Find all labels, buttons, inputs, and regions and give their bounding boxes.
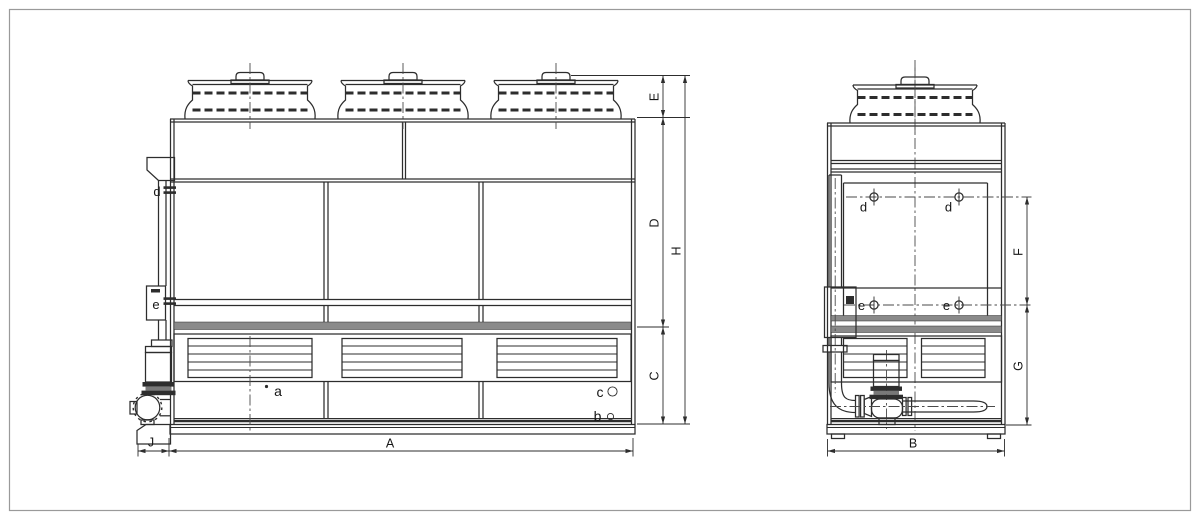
dim-label-E: E: [648, 93, 662, 101]
port-label-e-right: e: [943, 298, 950, 313]
louver-panel: [844, 339, 908, 378]
front-basin: [170, 382, 635, 435]
pipe-flange: [152, 340, 173, 347]
pump-volute: [135, 395, 160, 420]
side-ports: d d e e: [844, 189, 1032, 314]
dim-label-D: D: [648, 218, 662, 227]
dim-label-H: H: [670, 246, 684, 255]
side-louvers: [831, 336, 1002, 382]
port-c-mark: [608, 387, 617, 396]
front-louvers: [174, 334, 631, 382]
base-channel: [170, 425, 635, 435]
front-view: a c b d e E D C H J A: [130, 63, 690, 457]
side-riser-and-pump: [823, 175, 995, 429]
front-casing: [170, 119, 635, 425]
side-basin: [827, 419, 1005, 439]
port-d-flange: [164, 186, 177, 189]
louver-panel: [922, 339, 986, 378]
front-dimensions: E D C H J A: [138, 76, 690, 457]
louver-panel: [342, 339, 462, 378]
port-label-c: c: [597, 384, 604, 400]
dim-label-A: A: [386, 437, 395, 451]
port-label-e-left: e: [858, 298, 865, 313]
dim-label-C: C: [648, 371, 662, 380]
side-view: d d e e: [823, 60, 1032, 457]
port-label-d-left: d: [860, 200, 867, 215]
pump-volute: [872, 399, 903, 418]
port-label-d: d: [153, 184, 160, 199]
dim-label-G: G: [1012, 361, 1026, 371]
dim-label-B: B: [909, 437, 917, 451]
dim-label-F: F: [1012, 248, 1026, 256]
pump-motor: [146, 353, 172, 383]
spray-pump: [130, 347, 176, 425]
drawing-canvas: a c b d e E D C H J A: [0, 0, 1200, 520]
side-casing: [827, 123, 1005, 425]
port-label-a: a: [274, 383, 282, 399]
casing-band: [174, 322, 631, 330]
port-a-mark: [265, 385, 268, 388]
base-channel: [827, 425, 1005, 435]
cooling-tower-technical-drawing: a c b d e E D C H J A: [0, 0, 1200, 520]
port-label-e: e: [152, 297, 159, 312]
port-label-d-right: d: [945, 200, 952, 215]
port-e-flange: [164, 297, 177, 300]
louver-panel: [497, 339, 617, 378]
dim-label-J: J: [148, 436, 154, 450]
port-label-b: b: [594, 408, 602, 424]
